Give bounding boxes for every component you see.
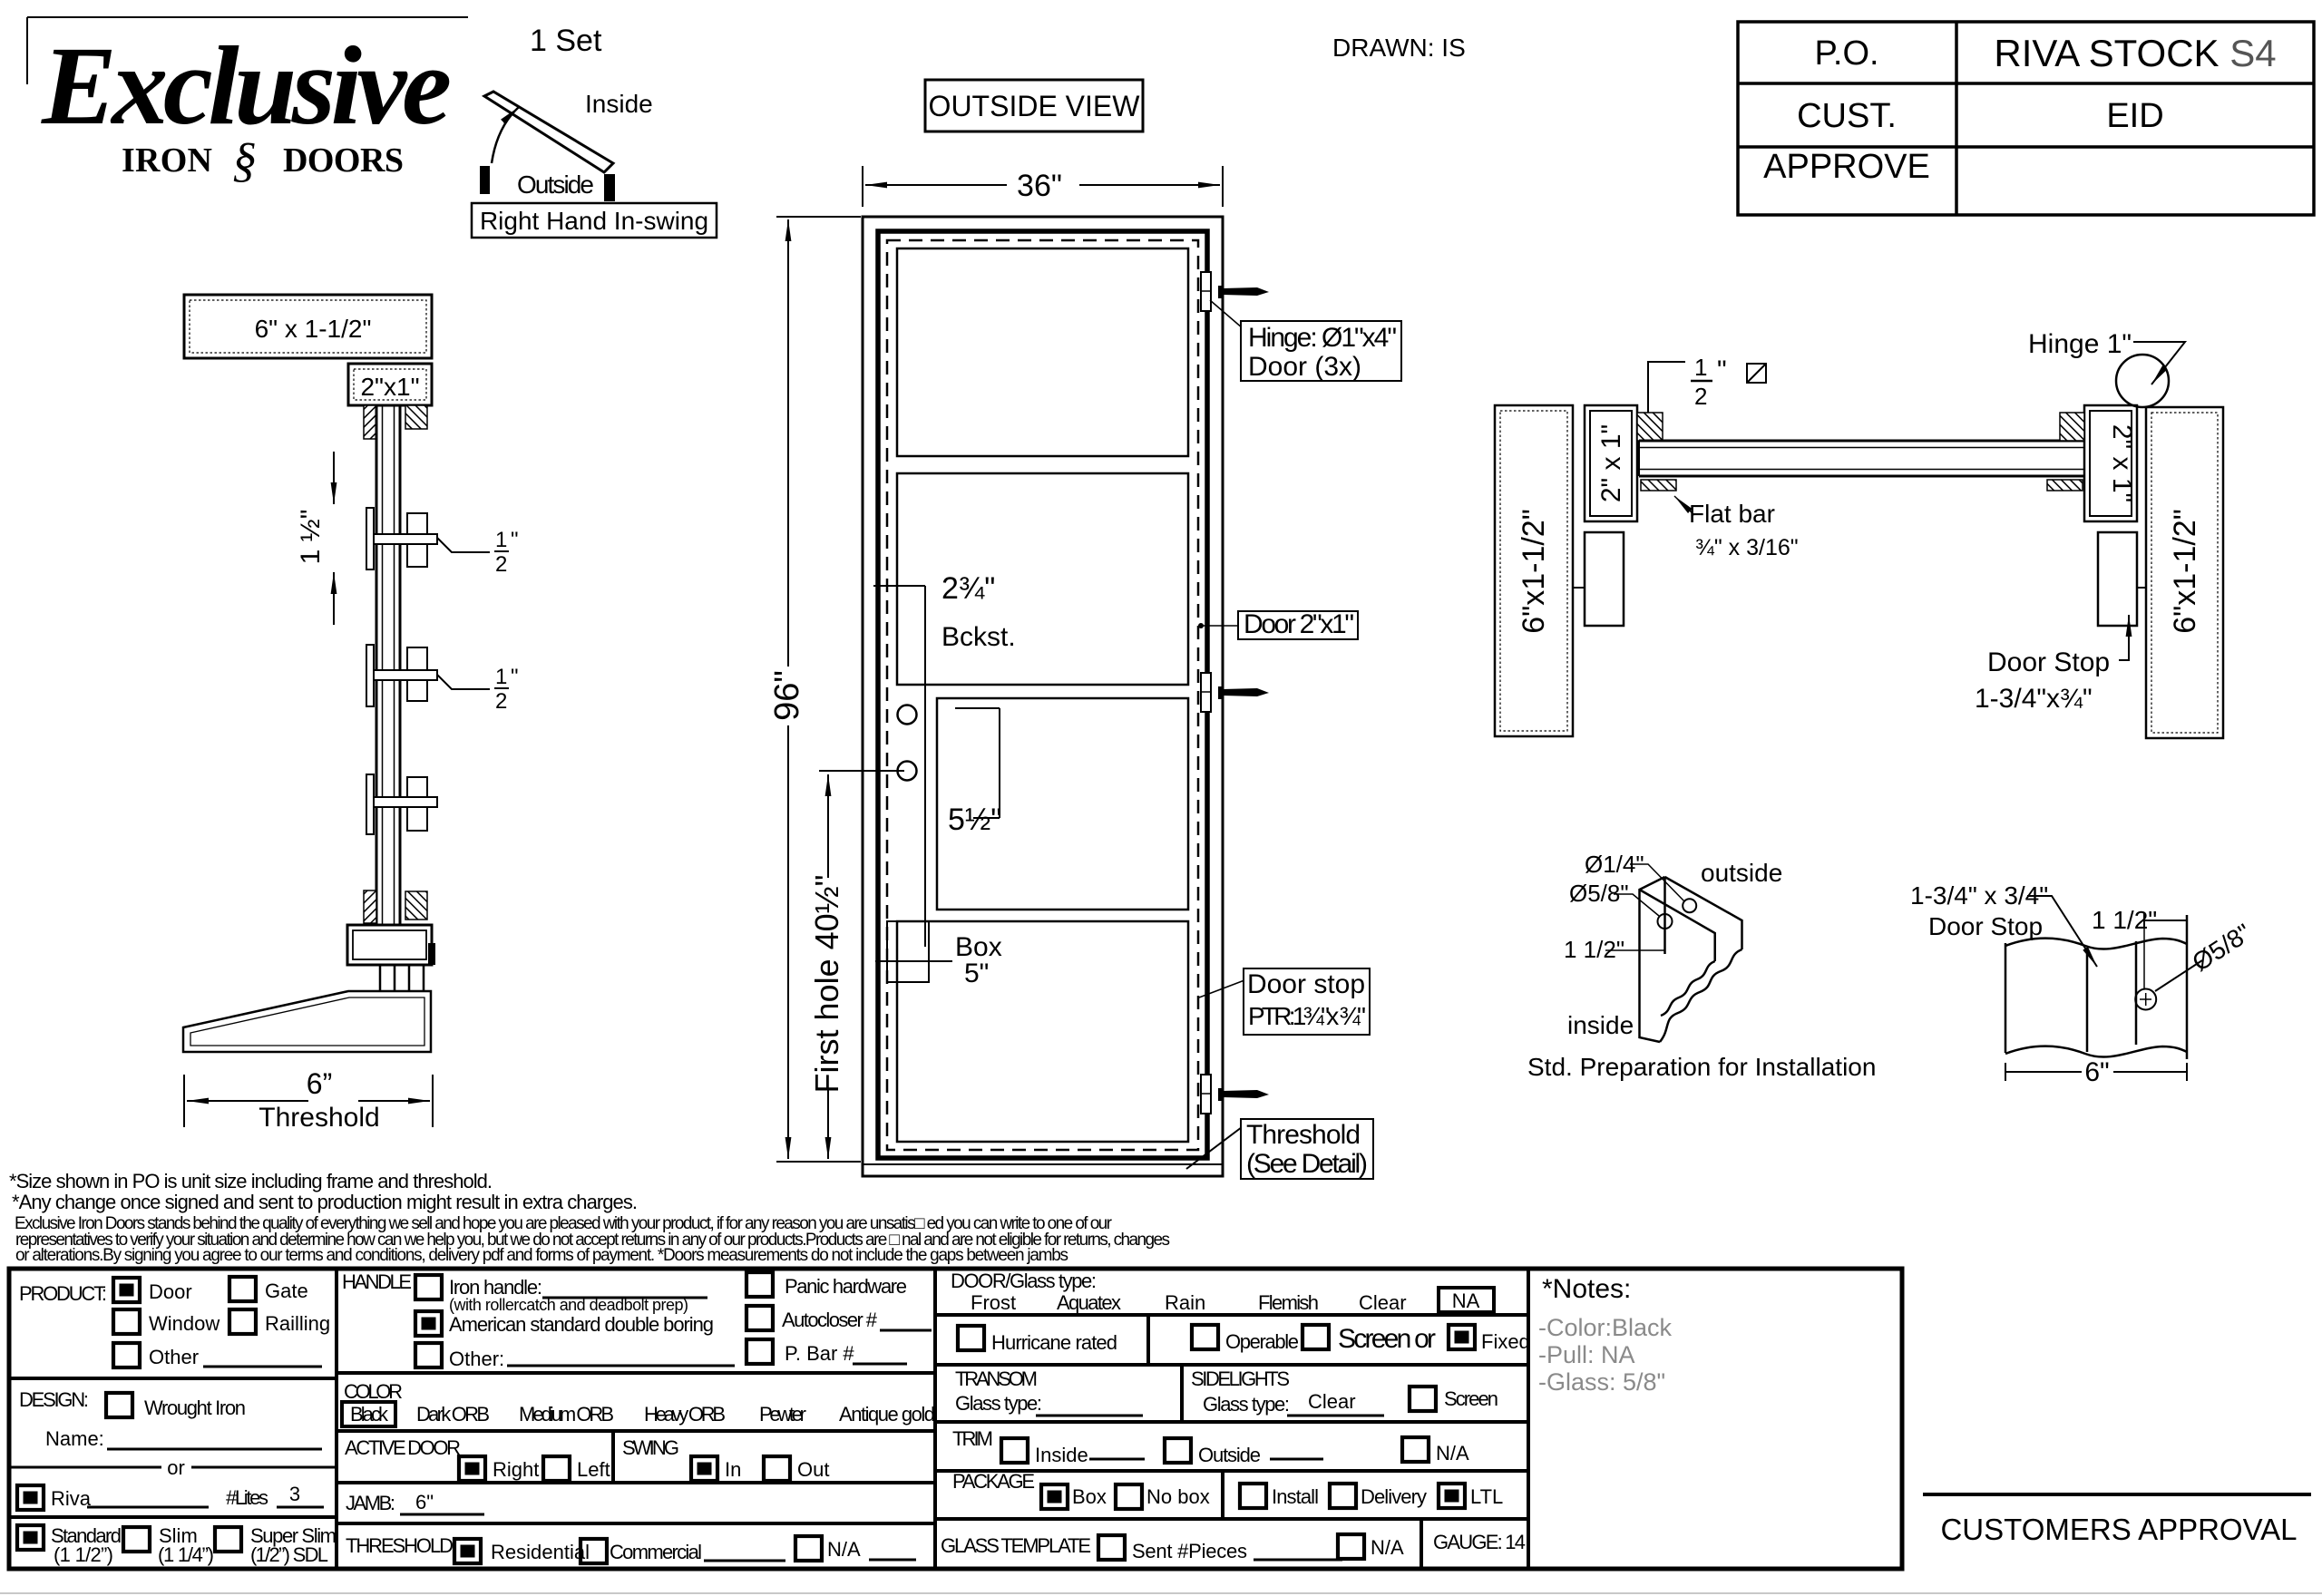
svg-text:6": 6" (415, 1491, 434, 1513)
svg-text:SWING: SWING (622, 1436, 679, 1459)
svg-text:Sent #Pieces: Sent #Pieces (1132, 1540, 1247, 1562)
svg-text:TRIM: TRIM (952, 1427, 993, 1450)
svg-text:¾" x 3/16": ¾" x 3/16" (1695, 535, 1799, 560)
svg-text:Hinge 1": Hinge 1" (2028, 329, 2132, 359)
svg-text:Other:: Other: (449, 1348, 504, 1370)
svg-text:2: 2 (495, 689, 507, 714)
svg-text:Flat bar: Flat bar (1689, 500, 1775, 528)
svg-text:Door Stop: Door Stop (1987, 647, 2110, 677)
svg-text:Wrought Iron: Wrought Iron (144, 1396, 246, 1419)
svg-text:": " (511, 528, 519, 552)
svg-text:1: 1 (495, 665, 507, 689)
svg-text:Railling: Railling (265, 1312, 330, 1335)
svg-text:DOORS: DOORS (283, 141, 404, 180)
svg-text:Flemish: Flemish (1258, 1291, 1319, 1314)
svg-text:American standard double borin: American standard double boring (449, 1313, 714, 1336)
svg-text:APPROVE: APPROVE (1763, 148, 1930, 186)
svg-text:DRAWN: IS: DRAWN: IS (1332, 34, 1466, 62)
svg-text:No box: No box (1146, 1485, 1210, 1508)
svg-text:-Glass: 5/8": -Glass: 5/8" (1538, 1368, 1665, 1396)
svg-text:N/A: N/A (1371, 1536, 1404, 1559)
svg-text:N/A: N/A (1436, 1442, 1469, 1465)
svg-text:2" x 1": 2" x 1" (2107, 424, 2137, 502)
svg-text:RIVA STOCK S4: RIVA STOCK S4 (1994, 32, 2276, 74)
svg-text:In: In (725, 1458, 741, 1481)
svg-text:*Size shown in PO is unit size: *Size shown in PO is unit size including… (9, 1170, 493, 1192)
svg-text:Box: Box (1072, 1485, 1107, 1508)
svg-text:Outside: Outside (517, 170, 594, 199)
svg-text:Door (3x): Door (3x) (1248, 352, 1361, 382)
svg-text:PRODUCT:: PRODUCT: (19, 1282, 107, 1305)
svg-text:Clear: Clear (1308, 1390, 1356, 1413)
svg-text:(See Detail): (See Detail) (1246, 1149, 1368, 1179)
svg-text:Outside: Outside (1198, 1444, 1261, 1466)
svg-text:P.O.: P.O. (1814, 34, 1878, 73)
svg-text:GLASS TEMPLATE: GLASS TEMPLATE (941, 1534, 1091, 1557)
svg-text:6" x 1-1/2": 6" x 1-1/2" (255, 315, 372, 343)
svg-text:-Color:Black: -Color:Black (1538, 1314, 1673, 1341)
svg-text:Door Stop: Door Stop (1928, 912, 2043, 940)
svg-text:Glass type:: Glass type: (1203, 1393, 1290, 1416)
svg-text:or alterations.By signing you: or alterations.By signing you agree to o… (15, 1246, 1068, 1265)
svg-text:Other: Other (149, 1346, 199, 1368)
svg-text:36": 36" (1017, 169, 1062, 203)
svg-text:#Lites: #Lites (226, 1486, 268, 1509)
svg-text:Hinge: Ø1"x4": Hinge: Ø1"x4" (1248, 323, 1397, 353)
svg-text:DESIGN:: DESIGN: (19, 1388, 89, 1411)
svg-text:Residential: Residential (491, 1541, 590, 1563)
svg-text:PACKAGE: PACKAGE (952, 1470, 1035, 1493)
svg-text:Inside: Inside (1035, 1444, 1088, 1466)
svg-text:Black: Black (350, 1403, 389, 1426)
svg-text:2"x1": 2"x1" (360, 373, 419, 401)
svg-text:inside: inside (1567, 1011, 1634, 1039)
svg-text:2" x 1": 2" x 1" (1596, 424, 1626, 502)
svg-text:Panic hardware: Panic hardware (785, 1275, 907, 1298)
svg-text:5½": 5½" (948, 803, 1001, 837)
svg-text:IRON: IRON (122, 141, 212, 180)
svg-text:Dark ORB: Dark ORB (416, 1403, 490, 1426)
svg-text:2: 2 (1694, 383, 1707, 410)
svg-text:outside: outside (1701, 859, 1782, 887)
svg-text:(with rollercatch and deadbolt: (with rollercatch and deadbolt prep) (449, 1296, 688, 1314)
svg-text:PTR:1¾"x ¾": PTR:1¾"x ¾" (1248, 1002, 1366, 1030)
svg-text:COLOR: COLOR (344, 1380, 403, 1403)
svg-text:Ø5/8": Ø5/8" (1569, 880, 1629, 907)
svg-text:Right: Right (493, 1458, 539, 1481)
svg-text:HANDLE: HANDLE (342, 1270, 412, 1293)
svg-text:CUSTOMERS APPROVAL: CUSTOMERS APPROVAL (1940, 1513, 2297, 1546)
svg-text:Exclusive: Exclusive (41, 24, 452, 148)
svg-text:Door stop: Door stop (1247, 969, 1365, 999)
svg-text:JAMB:: JAMB: (346, 1492, 395, 1514)
svg-text:Delivery: Delivery (1361, 1485, 1427, 1508)
svg-text:Pewter: Pewter (759, 1403, 806, 1426)
svg-text:or: or (167, 1456, 185, 1479)
svg-text:EID: EID (2106, 97, 2163, 135)
svg-text:6”: 6” (307, 1067, 332, 1100)
svg-text:6": 6" (2084, 1057, 2109, 1087)
svg-text:6"x1-1/2": 6"x1-1/2" (1517, 509, 1551, 634)
svg-text:Threshold: Threshold (259, 1103, 379, 1133)
svg-text:§: § (232, 132, 257, 187)
svg-text:96": 96" (768, 670, 806, 721)
svg-text:2¾": 2¾" (941, 571, 995, 606)
svg-text:P. Bar #: P. Bar # (785, 1342, 854, 1365)
svg-text:Install: Install (1272, 1485, 1319, 1508)
svg-text:(1 1/2”): (1 1/2”) (54, 1543, 113, 1566)
svg-text:(1 1/4”): (1 1/4”) (158, 1543, 214, 1566)
svg-text:Std. Preparation for Installat: Std. Preparation for Installation (1527, 1053, 1876, 1081)
svg-text:Left: Left (577, 1458, 610, 1481)
svg-text:1-3/4"x¾": 1-3/4"x¾" (1975, 684, 2093, 714)
svg-text:(1/2”) SDL: (1/2”) SDL (250, 1543, 328, 1566)
svg-text:Right Hand In-swing: Right Hand In-swing (480, 207, 708, 235)
svg-text:Clear: Clear (1359, 1291, 1407, 1314)
svg-text:Threshold: Threshold (1246, 1120, 1361, 1150)
svg-text:ACTIVE DOOR: ACTIVE DOOR (345, 1436, 461, 1459)
svg-text:Operable: Operable (1225, 1330, 1299, 1353)
svg-text:-Pull: NA: -Pull: NA (1538, 1341, 1635, 1368)
svg-text:Screen: Screen (1444, 1387, 1498, 1410)
svg-text:5": 5" (964, 959, 989, 988)
svg-text:Window: Window (149, 1312, 220, 1335)
svg-text:LTL: LTL (1470, 1485, 1503, 1508)
svg-text:Commercial: Commercial (610, 1541, 702, 1563)
svg-text:SIDELIGHTS: SIDELIGHTS (1191, 1367, 1290, 1390)
svg-text:Autocloser #: Autocloser # (782, 1309, 878, 1331)
svg-text:3: 3 (289, 1483, 300, 1505)
svg-text:Bckst.: Bckst. (941, 622, 1016, 652)
svg-text:Hurricane rated: Hurricane rated (991, 1331, 1117, 1354)
svg-text:GAUGE: 14: GAUGE: 14 (1433, 1531, 1526, 1553)
svg-text:Name:: Name: (45, 1427, 104, 1450)
svg-text:2: 2 (495, 552, 507, 577)
svg-text:NA: NA (1452, 1289, 1480, 1312)
svg-text:Inside: Inside (585, 90, 653, 118)
svg-text:Aquatex: Aquatex (1057, 1291, 1121, 1314)
svg-text:DOOR/Glass type:: DOOR/Glass type: (951, 1270, 1097, 1292)
svg-text:": " (1717, 355, 1727, 385)
svg-text:6"x1-1/2": 6"x1-1/2" (2168, 509, 2202, 634)
svg-text:Riva: Riva (51, 1487, 92, 1510)
svg-text:1 ½": 1 ½" (296, 510, 326, 565)
svg-text:CUST.: CUST. (1797, 97, 1897, 135)
svg-text:*Any change once signed and se: *Any change once signed and sent to prod… (12, 1191, 638, 1213)
svg-text:Antique gold: Antique gold (839, 1403, 935, 1426)
svg-text:Gate: Gate (265, 1280, 308, 1302)
svg-text:Screen or: Screen or (1338, 1324, 1436, 1354)
svg-text:Door: Door (149, 1280, 192, 1303)
svg-text:Frost: Frost (971, 1291, 1016, 1314)
svg-text:1 Set: 1 Set (530, 24, 602, 58)
svg-text:Fixed: Fixed (1481, 1330, 1530, 1353)
svg-text:N/A: N/A (827, 1538, 861, 1561)
svg-text:1: 1 (495, 528, 507, 552)
svg-text:Heavy ORB: Heavy ORB (644, 1403, 726, 1426)
svg-text:First hole 40½": First hole 40½" (808, 875, 845, 1094)
svg-text:OUTSIDE VIEW: OUTSIDE VIEW (929, 90, 1141, 122)
svg-text:*Notes:: *Notes: (1542, 1274, 1631, 1304)
svg-text:Door 2"x1": Door 2"x1" (1244, 609, 1354, 639)
svg-text:Glass type:: Glass type: (955, 1392, 1042, 1415)
svg-text:Out: Out (797, 1458, 829, 1481)
svg-text:1 1/2": 1 1/2" (1564, 936, 1624, 963)
svg-text:Rain: Rain (1165, 1291, 1205, 1314)
svg-text:": " (511, 665, 519, 689)
svg-text:THRESHOLD: THRESHOLD (346, 1534, 454, 1557)
svg-text:TRANSOM: TRANSOM (955, 1367, 1038, 1390)
svg-text:Medium ORB: Medium ORB (519, 1403, 614, 1426)
svg-text:1: 1 (1694, 354, 1707, 381)
